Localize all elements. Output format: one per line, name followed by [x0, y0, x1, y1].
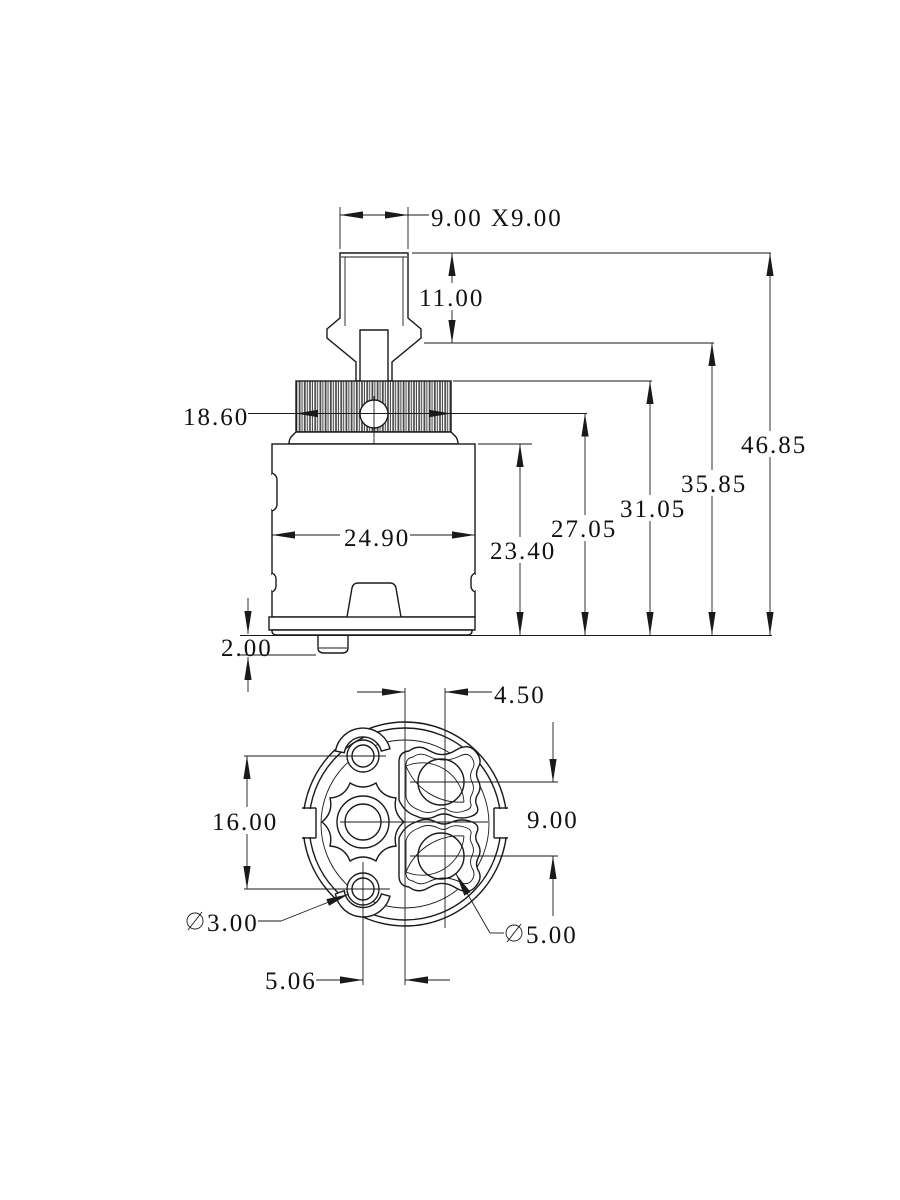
dim-screw-pitch: 16.00 — [208, 756, 292, 889]
dim-body-width-label: 24.90 — [344, 525, 410, 552]
dim-stem-height-label: 11.00 — [419, 285, 484, 312]
dia-port-label: 5.00 — [526, 922, 578, 949]
dim-height-hole-center: 27.05 — [547, 414, 619, 636]
keying-notch-left — [300, 808, 316, 838]
dim-port-offset: 4.50 — [357, 682, 546, 709]
water-port-top — [399, 747, 480, 819]
dia-small-label: 3.00 — [207, 910, 259, 937]
diameter-symbol — [506, 924, 522, 942]
diameter-symbol — [187, 912, 203, 930]
body-notch-left-upper — [272, 473, 277, 511]
body-notch-right-lower — [471, 573, 475, 592]
base-band — [269, 617, 475, 630]
dim-stem-height: 11.00 — [415, 253, 485, 343]
body-notch-left-lower — [272, 573, 276, 592]
dim-port-offset-label: 4.50 — [494, 682, 546, 709]
body-boss — [347, 583, 401, 617]
dim-height-hole-center-label: 27.05 — [551, 516, 617, 543]
dim-port-pitch-label: 9.00 — [527, 807, 579, 834]
dim-height-stem-base: 35.85 — [677, 343, 749, 635]
dim-spline-width-label: 18.60 — [183, 404, 249, 431]
base-lip — [272, 630, 472, 635]
dim-height-stem-base-label: 35.85 — [681, 471, 747, 498]
dim-height-spline-top: 31.05 — [616, 381, 688, 635]
dim-screw-offset-label: 5.06 — [265, 968, 317, 995]
stem-outline — [327, 253, 421, 381]
spline-skirt — [289, 432, 458, 444]
drawing-sheet: 9.00 X9.00 11.00 18.60 24.90 23.40 — [0, 0, 900, 1200]
cartridge-drawing: 9.00 X9.00 11.00 18.60 24.90 23.40 — [0, 0, 900, 1200]
dim-stem-square-label: 9.00 X9.00 — [431, 205, 563, 232]
side-view: 9.00 X9.00 11.00 18.60 24.90 23.40 — [183, 205, 809, 692]
leader-dia-small: 3.00 — [187, 894, 349, 937]
dim-base-tab: 2.00 — [221, 598, 273, 692]
dim-screw-offset: 5.06 — [265, 968, 450, 995]
dim-screw-pitch-label: 16.00 — [212, 809, 278, 836]
keying-notch-right — [494, 808, 510, 838]
dim-port-pitch: 9.00 — [523, 722, 581, 916]
base-tab — [318, 635, 348, 653]
dim-height-spline-top-label: 31.05 — [620, 496, 686, 523]
water-port-bottom — [399, 820, 480, 892]
dim-body-height-label: 23.40 — [490, 538, 556, 565]
dim-height-total: 46.85 — [737, 253, 809, 635]
dim-base-tab-label: 2.00 — [221, 635, 273, 662]
dim-stem-square: 9.00 X9.00 — [340, 205, 563, 232]
bottom-view: 4.50 9.00 16.00 5.06 — [187, 682, 581, 995]
dim-height-total-label: 46.85 — [741, 432, 807, 459]
